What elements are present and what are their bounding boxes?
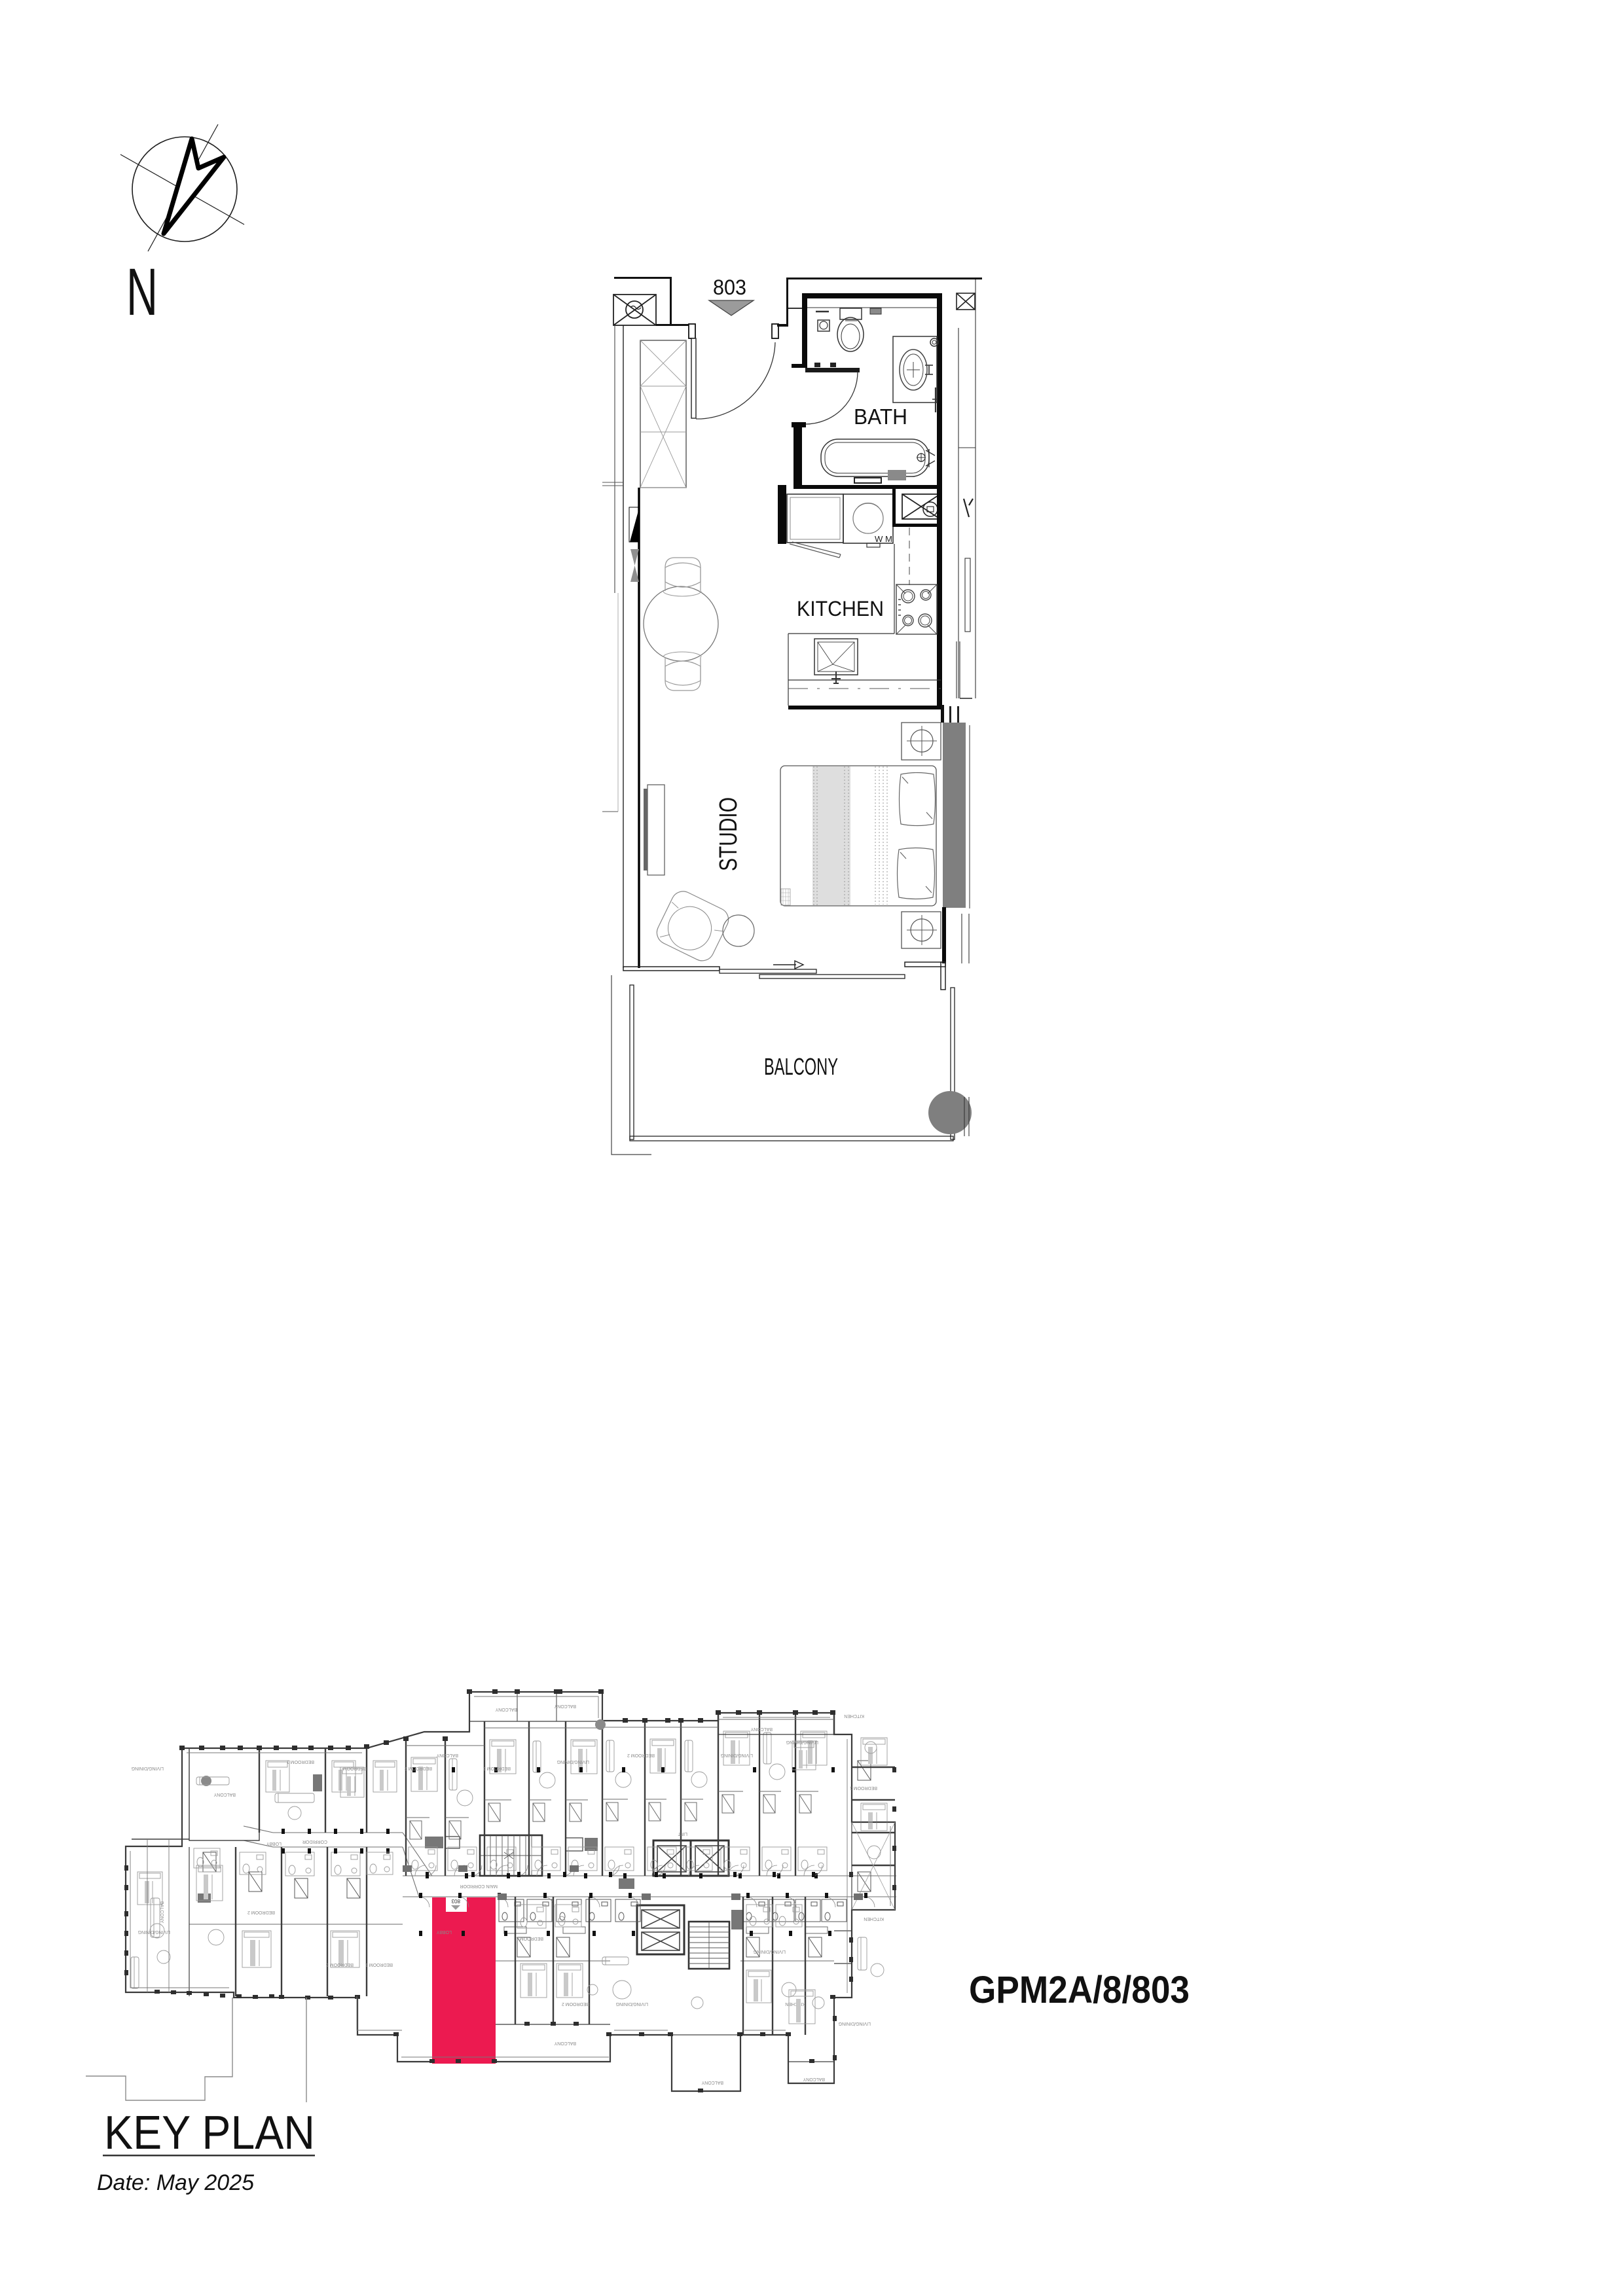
svg-text:BEDROOM 2: BEDROOM 2 — [247, 1910, 275, 1914]
svg-text:KITCHEN: KITCHEN — [797, 597, 884, 620]
svg-text:KITCHEN: KITCHEN — [844, 1713, 864, 1718]
svg-text:KITCHEN: KITCHEN — [864, 1916, 884, 1921]
svg-text:BALCONY: BALCONY — [554, 1704, 576, 1708]
svg-text:LOBBY: LOBBY — [436, 1929, 452, 1934]
svg-text:BALCONY: BALCONY — [213, 1792, 236, 1797]
svg-text:GPM2A/8/803: GPM2A/8/803 — [969, 1969, 1190, 2011]
svg-text:Date: May 2025: Date: May 2025 — [97, 2170, 254, 2195]
svg-text:BEDROOM 1: BEDROOM 1 — [339, 1766, 367, 1770]
svg-text:BEDROOM 1: BEDROOM 1 — [287, 1759, 314, 1764]
svg-text:LIVING/DINING: LIVING/DINING — [721, 1753, 753, 1757]
svg-text:LIVING/DINING: LIVING/DINING — [616, 2001, 648, 2006]
svg-text:CORRIDOR: CORRIDOR — [302, 1839, 327, 1844]
svg-text:LIVING/DINING: LIVING/DINING — [754, 1949, 786, 1954]
svg-text:LIFT: LIFT — [678, 1831, 687, 1836]
svg-text:BATH: BATH — [854, 404, 907, 429]
svg-text:BALCONY: BALCONY — [436, 1753, 458, 1757]
svg-text:803: 803 — [713, 276, 746, 299]
svg-text:W M: W M — [875, 534, 892, 544]
svg-text:LIVING/DINING: LIVING/DINING — [839, 2021, 871, 2026]
svg-text:BEDROOM 1: BEDROOM 1 — [516, 1936, 543, 1941]
svg-text:MAIN CORRIDOR: MAIN CORRIDOR — [460, 1884, 498, 1888]
svg-text:KITCHEN: KITCHEN — [785, 2001, 805, 2006]
svg-text:BEDROOM 1: BEDROOM 1 — [483, 1766, 511, 1770]
svg-text:BALCONY: BALCONY — [554, 2041, 576, 2045]
svg-text:BALCONY: BALCONY — [701, 2080, 723, 2085]
svg-text:LIVING/DINING: LIVING/DINING — [557, 1759, 589, 1764]
svg-text:LOBBY: LOBBY — [266, 1841, 282, 1846]
svg-text:KEY PLAN: KEY PLAN — [104, 2107, 315, 2159]
svg-text:BEDROOM 2: BEDROOM 2 — [405, 1766, 432, 1770]
svg-text:BALCONY: BALCONY — [495, 1707, 517, 1712]
svg-text:BEDROOM 2: BEDROOM 2 — [627, 1753, 655, 1757]
svg-text:BALCONY: BALCONY — [159, 1901, 164, 1924]
svg-text:BALCONY: BALCONY — [803, 2077, 825, 2081]
svg-text:LIVING/DINING: LIVING/DINING — [138, 1929, 170, 1934]
svg-text:BEDROOM 1: BEDROOM 1 — [850, 1785, 877, 1790]
svg-text:BEDROOM 1: BEDROOM 1 — [365, 1962, 393, 1967]
svg-text:BEDROOM 2: BEDROOM 2 — [562, 2001, 589, 2006]
svg-text:N: N — [126, 255, 158, 329]
svg-text:BALCONY: BALCONY — [764, 1053, 838, 1080]
svg-text:BEDROOM 3: BEDROOM 3 — [326, 1962, 354, 1967]
svg-text:803: 803 — [451, 1898, 460, 1904]
svg-text:BALCONY: BALCONY — [750, 1727, 773, 1731]
svg-text:STUDIO: STUDIO — [715, 797, 742, 871]
svg-text:LIVING/DINING: LIVING/DINING — [132, 1766, 164, 1770]
